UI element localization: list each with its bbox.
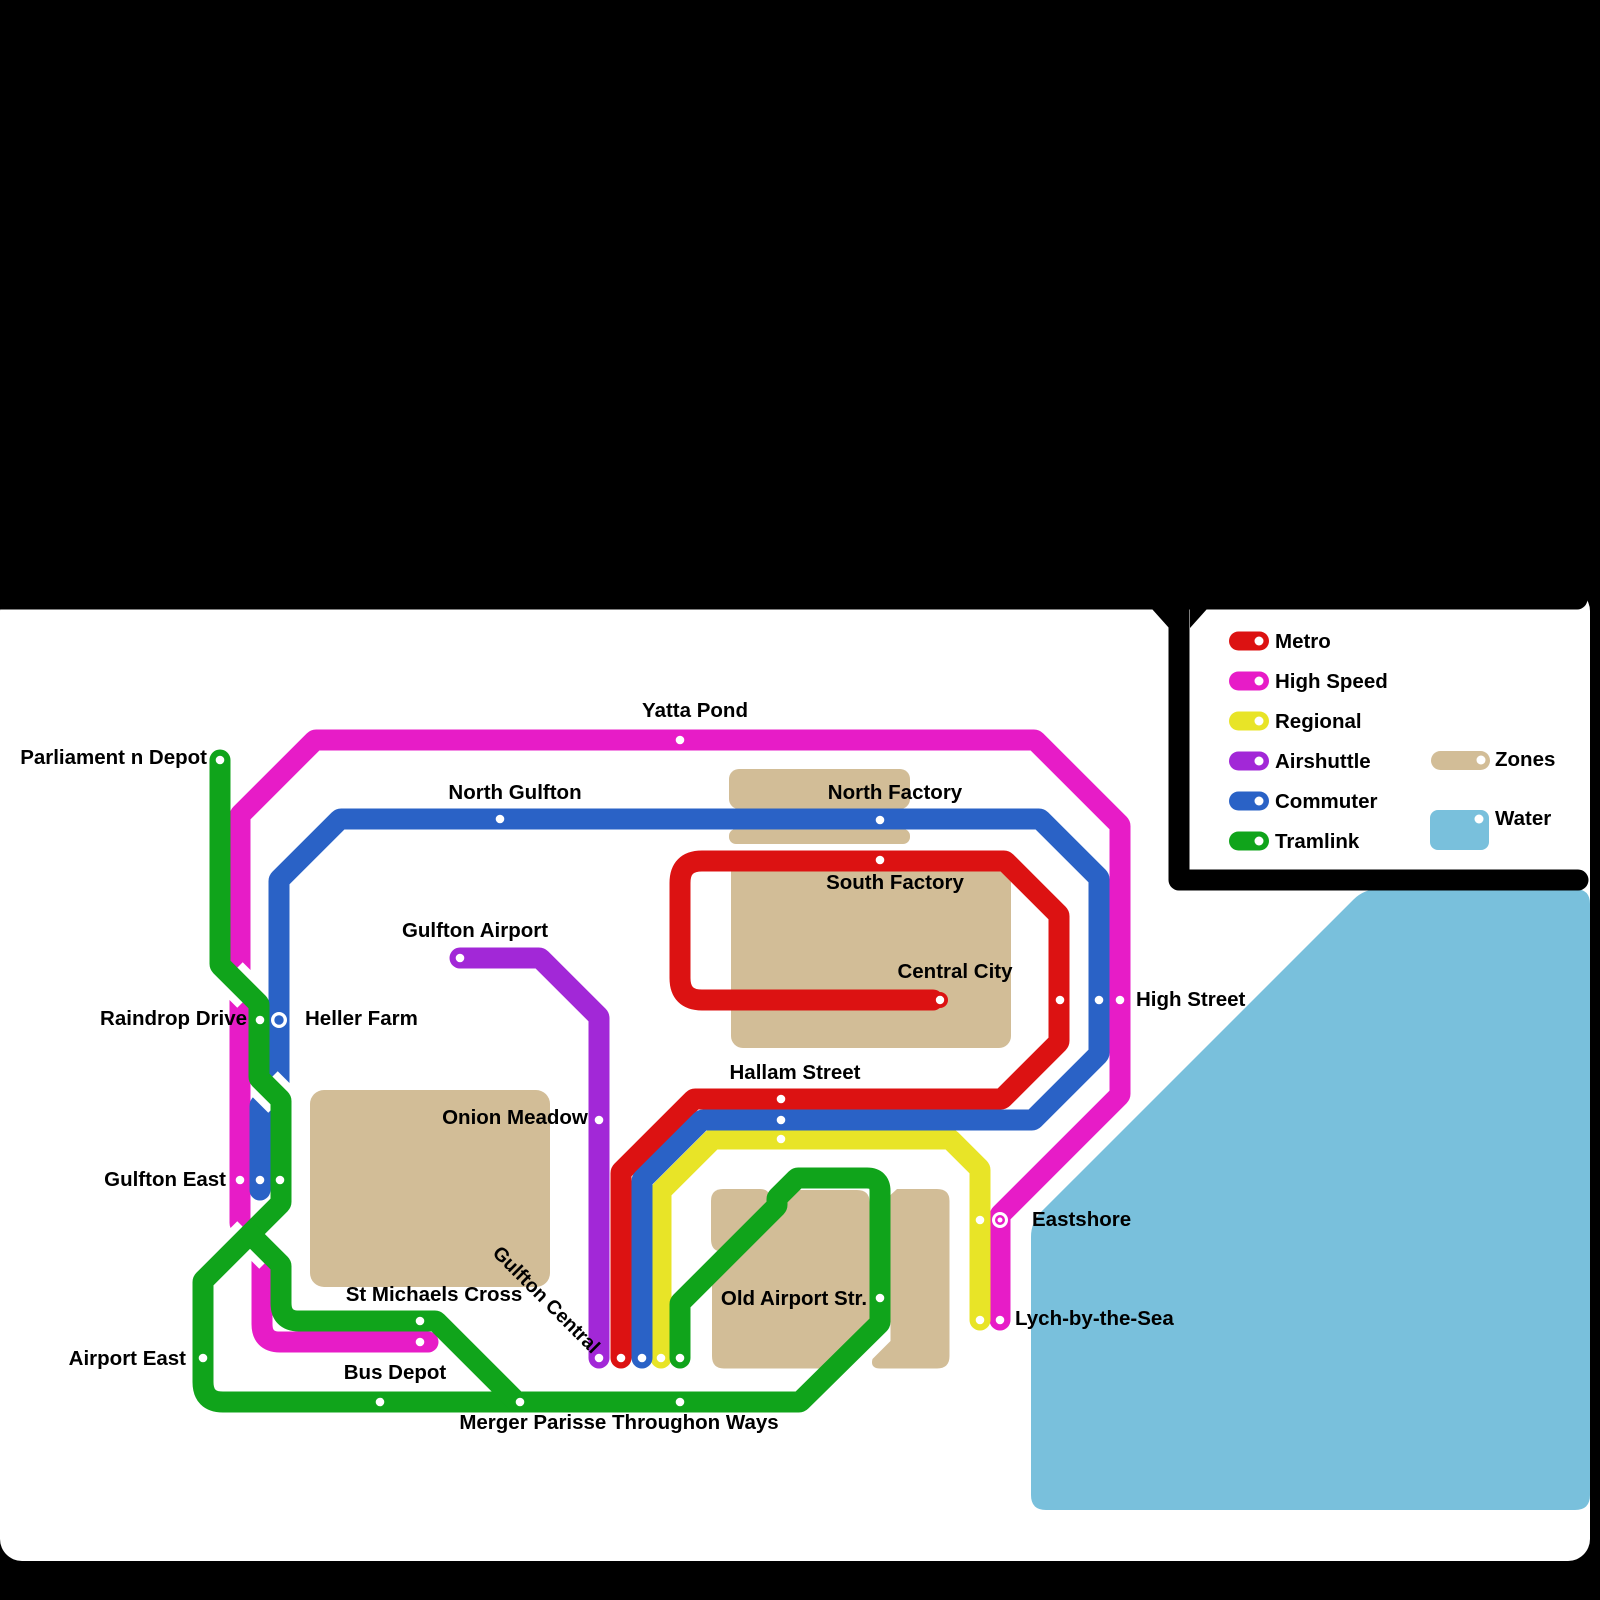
svg-text:Eastshore: Eastshore bbox=[1032, 1208, 1131, 1231]
svg-text:Gulfton Airport: Gulfton Airport bbox=[402, 919, 548, 942]
svg-text:Onion Meadow: Onion Meadow bbox=[442, 1106, 588, 1129]
svg-text:Metro: Metro bbox=[1275, 630, 1331, 653]
svg-text:Hallam Street: Hallam Street bbox=[729, 1061, 860, 1084]
svg-text:Regional: Regional bbox=[1275, 710, 1362, 733]
svg-text:Gulfton East: Gulfton East bbox=[104, 1168, 226, 1191]
svg-text:Parliament n Depot: Parliament n Depot bbox=[20, 746, 207, 769]
svg-text:Commuter: Commuter bbox=[1275, 790, 1378, 813]
svg-text:St Michaels Cross: St Michaels Cross bbox=[346, 1283, 523, 1306]
svg-text:Old Airport Str.: Old Airport Str. bbox=[721, 1287, 867, 1310]
svg-text:High Street: High Street bbox=[1136, 988, 1246, 1011]
svg-text:Merger Parisse Throughon Ways: Merger Parisse Throughon Ways bbox=[459, 1411, 778, 1434]
svg-text:Bus Depot: Bus Depot bbox=[344, 1361, 447, 1384]
svg-text:Yatta Pond: Yatta Pond bbox=[642, 699, 748, 722]
svg-text:Heller Farm: Heller Farm bbox=[305, 1007, 418, 1030]
svg-text:Airshuttle: Airshuttle bbox=[1275, 750, 1371, 773]
svg-text:High Speed: High Speed bbox=[1275, 670, 1388, 693]
svg-text:Zones: Zones bbox=[1495, 748, 1555, 771]
svg-text:Raindrop Drive: Raindrop Drive bbox=[100, 1007, 247, 1030]
svg-text:North Gulfton: North Gulfton bbox=[448, 781, 581, 804]
svg-text:South Factory: South Factory bbox=[826, 871, 964, 894]
svg-text:Water: Water bbox=[1495, 807, 1551, 830]
svg-text:North Factory: North Factory bbox=[828, 781, 963, 804]
svg-text:Central City: Central City bbox=[897, 960, 1013, 983]
svg-text:Tramlink: Tramlink bbox=[1275, 830, 1360, 853]
svg-text:Lych-by-the-Sea: Lych-by-the-Sea bbox=[1015, 1307, 1174, 1330]
svg-text:Airport East: Airport East bbox=[69, 1347, 186, 1370]
